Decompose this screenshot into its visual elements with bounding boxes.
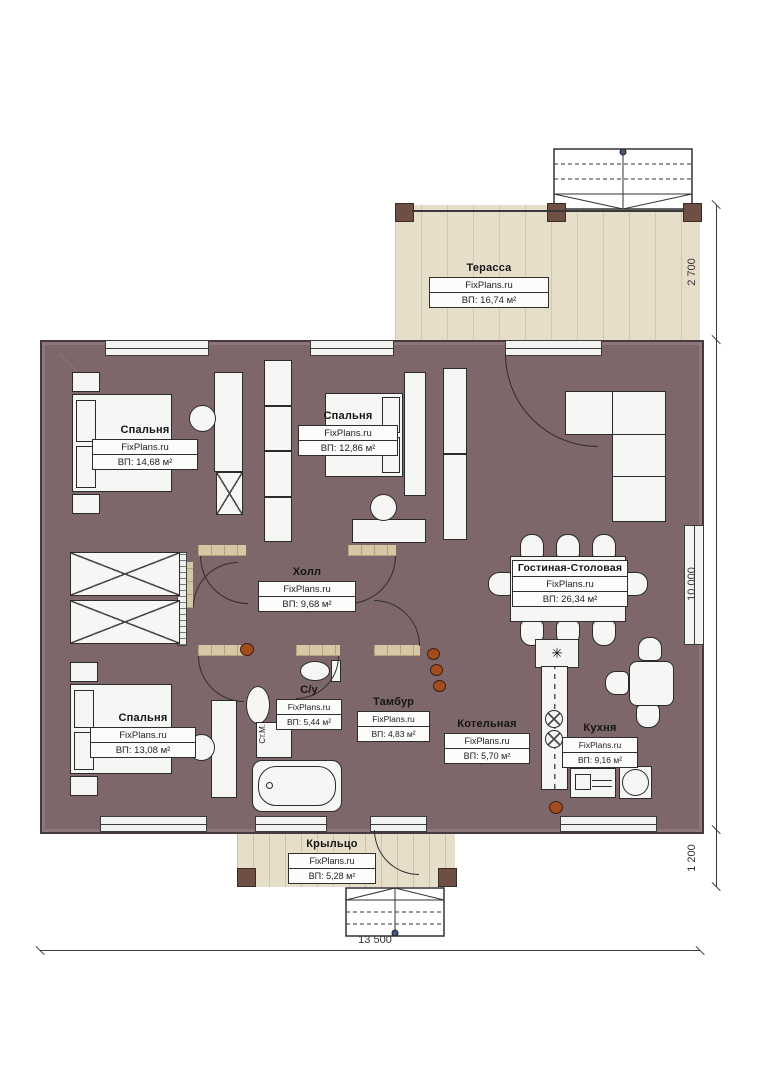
room-area: ВП: 9,16 м² (563, 752, 637, 767)
dim-house-depth: 10 000 (686, 567, 698, 601)
room-info-box: FixPlans.ru ВП: 5,28 м² (288, 853, 376, 884)
room-info-box: FixPlans.ru ВП: 26,34 м² (512, 576, 628, 607)
room-area: ВП: 12,86 м² (299, 440, 397, 455)
desk-chair (370, 494, 397, 521)
door-opening-bathroom (296, 645, 340, 656)
brand-text: FixPlans.ru (563, 738, 637, 752)
door-opening-bedroom1 (198, 545, 246, 556)
room-area: ВП: 13,08 м² (91, 742, 195, 757)
room-area: ВП: 5,70 м² (445, 748, 529, 763)
kitchen-table (629, 661, 674, 706)
wall-bed1-bed2 (248, 354, 262, 545)
window-bathroom-south (255, 816, 327, 832)
window-kitchen-south (560, 816, 657, 832)
terrace-post (395, 203, 414, 222)
nightstand (72, 494, 100, 514)
room-name: С/у (276, 684, 342, 697)
wardrobe-column (443, 368, 467, 540)
brand-text: FixPlans.ru (445, 734, 529, 748)
brand-text: FixPlans.ru (93, 440, 197, 454)
porch-post (438, 868, 457, 887)
room-info-box: FixPlans.ru ВП: 5,44 м² (276, 699, 342, 730)
room-info-box: FixPlans.ru ВП: 16,74 м² (429, 277, 549, 308)
kitchen-sink-icon (545, 730, 563, 748)
nightstand (70, 662, 98, 682)
wardrobe-cell (264, 497, 292, 543)
oven-door (575, 774, 591, 790)
wardrobe-cell (264, 406, 292, 452)
room-name: Тамбур (357, 696, 430, 709)
window-bedroom1-north (105, 340, 209, 356)
room-info-box: FixPlans.ru ВП: 14,68 м² (92, 439, 198, 470)
room-area: ВП: 26,34 м² (513, 591, 627, 606)
label-bedroom2: Спальня FixPlans.ru ВП: 12,86 м² (298, 410, 398, 456)
washing-machine-label: Ст.М. (258, 724, 267, 744)
door-opening-tambour (374, 645, 420, 656)
label-bedroom3: Спальня FixPlans.ru ВП: 13,08 м² (90, 712, 196, 758)
dining-chair (592, 620, 616, 646)
room-info-box: FixPlans.ru ВП: 13,08 м² (90, 727, 196, 758)
sink-icon (246, 686, 270, 724)
hood-box: ✳ (535, 639, 579, 668)
label-terrace: Терасса FixPlans.ru ВП: 16,74 м² (429, 262, 549, 308)
room-info-box: FixPlans.ru ВП: 4,83 м² (357, 711, 430, 742)
room-name: Крыльцо (288, 838, 376, 851)
wardrobe-cell (264, 360, 292, 406)
vent-dot (240, 643, 254, 656)
vent-dot (433, 680, 446, 692)
desk (352, 519, 426, 543)
room-area: ВП: 9,68 м² (259, 596, 355, 611)
room-name: Спальня (92, 424, 198, 437)
dimension-line-bottom (40, 950, 700, 951)
sofa-vertical (612, 391, 666, 522)
label-boiler: Котельная FixPlans.ru ВП: 5,70 м² (444, 718, 530, 764)
brand-text: FixPlans.ru (358, 712, 429, 726)
window-bedroom2-north (310, 340, 394, 356)
brand-text: FixPlans.ru (289, 854, 375, 868)
bathtub-drain (266, 782, 273, 789)
room-name: Гостиная-Столовая (512, 560, 628, 576)
stove-icon (622, 769, 649, 796)
porch-post (237, 868, 256, 887)
door-opening-bedroom3 (198, 645, 244, 656)
brand-text: FixPlans.ru (91, 728, 195, 742)
brand-text: FixPlans.ru (513, 577, 627, 591)
kitchen-chair (605, 671, 629, 695)
dim-porch-depth: 1 200 (686, 844, 698, 872)
label-kitchen: Кухня FixPlans.ru ВП: 9,16 м² (562, 722, 638, 768)
door-opening-bedroom2 (348, 545, 396, 556)
label-bedroom1: Спальня FixPlans.ru ВП: 14,68 м² (92, 424, 198, 470)
room-info-box: FixPlans.ru ВП: 5,70 м² (444, 733, 530, 764)
terrace-post (683, 203, 702, 222)
wardrobe-cell (264, 451, 292, 497)
dim-house-width: 13 500 (340, 934, 410, 946)
window-bedroom3-south (100, 816, 207, 832)
room-name: Холл (258, 566, 356, 579)
room-info-box: FixPlans.ru ВП: 12,86 м² (298, 425, 398, 456)
dim-terrace-depth: 2 700 (686, 258, 698, 286)
brand-text: FixPlans.ru (299, 426, 397, 440)
room-name: Терасса (429, 262, 549, 275)
label-bathroom: С/у FixPlans.ru ВП: 5,44 м² (276, 684, 342, 730)
room-name: Спальня (298, 410, 398, 423)
shelf (404, 372, 426, 496)
kitchen-chair (636, 704, 660, 728)
wardrobe-cell (443, 368, 467, 454)
room-area: ВП: 16,74 м² (430, 292, 548, 307)
wardrobe (216, 472, 243, 515)
wardrobe-cell (443, 454, 467, 540)
label-hall: Холл FixPlans.ru ВП: 9,68 м² (258, 566, 356, 612)
brand-text: FixPlans.ru (259, 582, 355, 596)
room-area: ВП: 4,83 м² (358, 726, 429, 741)
vent-dot (430, 664, 443, 676)
dimension-line-right (716, 205, 717, 887)
room-info-box: FixPlans.ru ВП: 9,16 м² (562, 737, 638, 768)
vent-dot (549, 801, 563, 814)
wall-bath-tambour (345, 656, 355, 816)
brand-text: FixPlans.ru (277, 700, 341, 714)
terrace-post (547, 203, 566, 222)
wardrobe-column (264, 360, 292, 542)
room-info-box: FixPlans.ru ВП: 9,68 м² (258, 581, 356, 612)
brand-text: FixPlans.ru (430, 278, 548, 292)
stairs-top (553, 148, 693, 210)
floor-plan: Ст.М. ✳ Терасса FixPlans.ru ВП: 16,74 м² (0, 0, 763, 1080)
storage-box (70, 600, 180, 644)
desk (214, 372, 243, 472)
room-name: Кухня (562, 722, 638, 735)
storage-box (70, 552, 180, 596)
room-area: ВП: 5,44 м² (277, 714, 341, 729)
stairs-bottom (345, 887, 445, 937)
label-tambour: Тамбур FixPlans.ru ВП: 4,83 м² (357, 696, 430, 742)
nightstand (70, 776, 98, 796)
label-living: Гостиная-Столовая FixPlans.ru ВП: 26,34 … (512, 560, 628, 607)
room-name: Котельная (444, 718, 530, 731)
nightstand (72, 372, 100, 392)
room-area: ВП: 5,28 м² (289, 868, 375, 883)
kitchen-sink-icon (545, 710, 563, 728)
room-area: ВП: 14,68 м² (93, 454, 197, 469)
kitchen-chair (638, 637, 662, 661)
terrace-edge-line (412, 210, 683, 212)
hood-icon: ✳ (551, 645, 563, 662)
vent-dot (427, 648, 440, 660)
label-porch: Крыльцо FixPlans.ru ВП: 5,28 м² (288, 838, 376, 884)
room-name: Спальня (90, 712, 196, 725)
